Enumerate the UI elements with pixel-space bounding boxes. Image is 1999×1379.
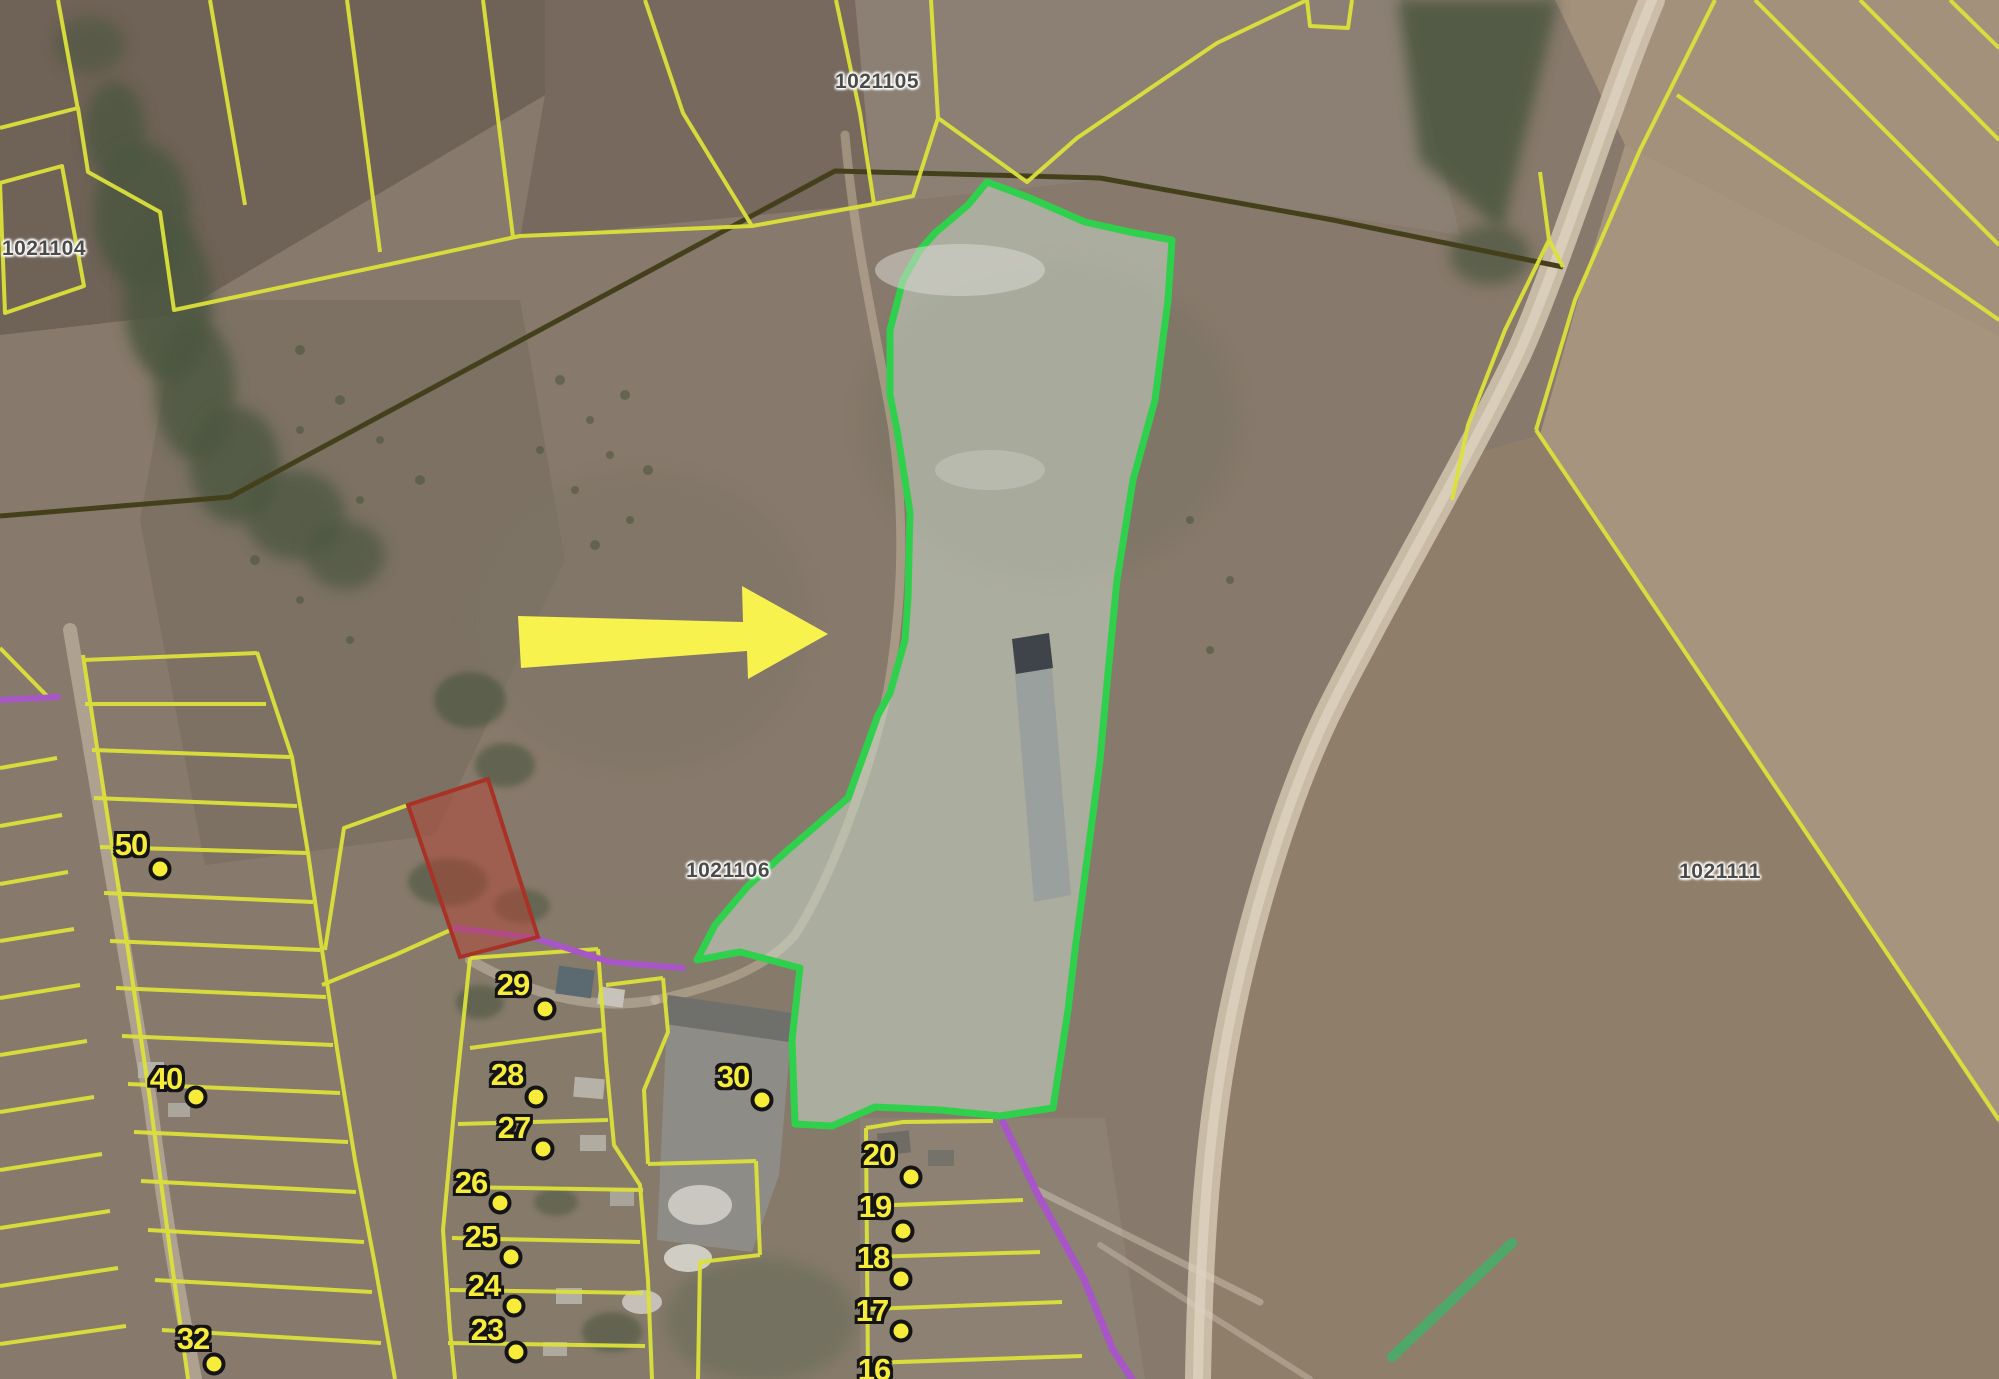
point-marker-dot[interactable] [505, 1341, 528, 1364]
point-marker-label[interactable]: 23 [471, 1312, 503, 1348]
point-marker-label[interactable]: 16 [858, 1352, 890, 1379]
parcel-number-label: 1021111 [1679, 860, 1761, 884]
house [610, 1190, 634, 1206]
house [555, 966, 595, 999]
house [580, 1135, 606, 1151]
point-marker-label[interactable]: 30 [717, 1059, 749, 1095]
point-marker-dot[interactable] [525, 1086, 548, 1109]
point-marker-label[interactable]: 17 [856, 1293, 888, 1329]
point-marker-label[interactable]: 40 [150, 1061, 182, 1097]
point-marker-dot[interactable] [751, 1089, 774, 1112]
point-marker-label[interactable]: 27 [498, 1110, 530, 1146]
point-marker-dot[interactable] [500, 1246, 523, 1269]
point-marker-label[interactable]: 19 [859, 1189, 891, 1225]
house [168, 1103, 190, 1117]
point-marker-label[interactable]: 20 [863, 1137, 895, 1173]
point-marker-dot[interactable] [503, 1295, 526, 1318]
point-marker-dot[interactable] [203, 1353, 226, 1376]
point-marker-dot[interactable] [489, 1192, 512, 1215]
point-marker-label[interactable]: 26 [455, 1165, 487, 1201]
point-marker-label[interactable]: 25 [465, 1219, 497, 1255]
house [573, 1077, 605, 1100]
point-marker-dot[interactable] [892, 1220, 915, 1243]
point-marker-dot[interactable] [534, 998, 557, 1021]
parcel-number-label: 1021104 [2, 237, 86, 261]
point-marker-dot[interactable] [532, 1138, 555, 1161]
point-marker-label[interactable]: 29 [497, 967, 529, 1003]
parcel-number-label: 1021106 [686, 859, 770, 883]
point-marker-label[interactable]: 18 [857, 1240, 889, 1276]
map-viewport[interactable]: 1021104102110510211061021111504032292827… [0, 0, 1999, 1379]
point-marker-label[interactable]: 28 [491, 1057, 523, 1093]
parcel-number-label: 1021105 [835, 70, 919, 94]
point-marker-label[interactable]: 32 [177, 1321, 209, 1357]
point-marker-label[interactable]: 24 [468, 1268, 500, 1304]
point-marker-dot[interactable] [890, 1320, 913, 1343]
point-marker-dot[interactable] [149, 858, 172, 881]
point-marker-dot[interactable] [890, 1268, 913, 1291]
point-marker-label[interactable]: 50 [115, 827, 147, 863]
house [928, 1150, 954, 1166]
point-marker-dot[interactable] [900, 1166, 923, 1189]
point-marker-dot[interactable] [185, 1086, 208, 1109]
satellite-map-canvas [0, 0, 1999, 1379]
